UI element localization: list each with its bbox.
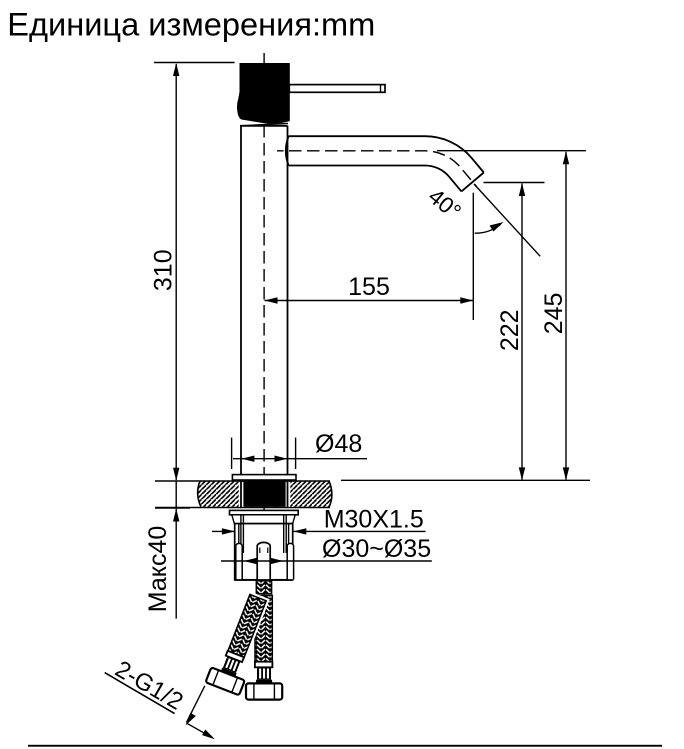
svg-text:222: 222 <box>496 309 524 351</box>
svg-text:M30X1.5: M30X1.5 <box>324 505 424 533</box>
svg-text:310: 310 <box>150 249 178 291</box>
svg-text:Единица измерения:mm: Единица измерения:mm <box>7 6 375 43</box>
svg-text:Ø30~Ø35: Ø30~Ø35 <box>322 535 431 563</box>
svg-text:2-G1/2: 2-G1/2 <box>111 656 188 716</box>
svg-text:155: 155 <box>348 273 390 301</box>
svg-text:Макс40: Макс40 <box>144 526 172 613</box>
svg-text:245: 245 <box>540 293 568 335</box>
svg-text:Ø48: Ø48 <box>315 430 362 458</box>
